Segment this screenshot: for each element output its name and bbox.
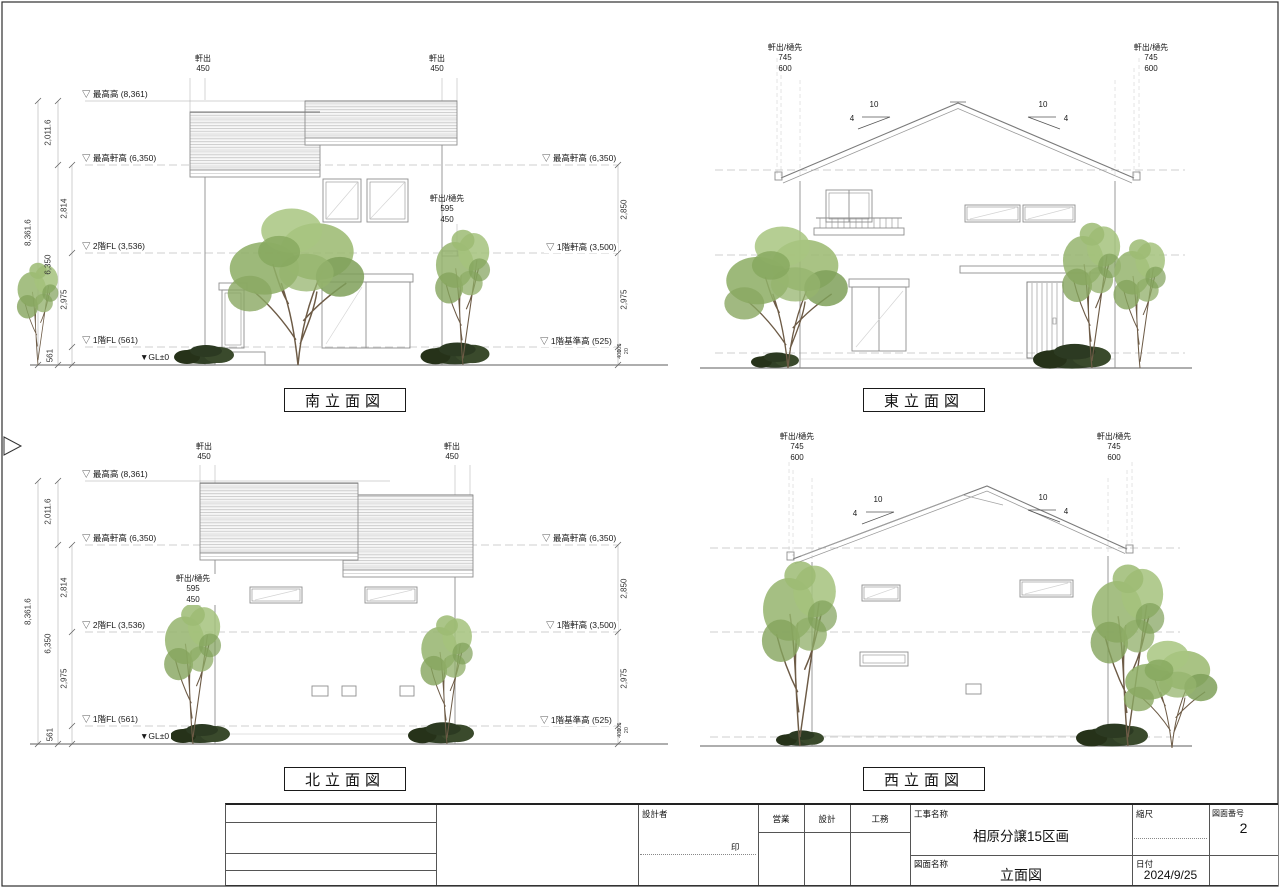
shrub xyxy=(421,342,490,364)
design-column-label: 設計 xyxy=(804,813,850,825)
tree xyxy=(164,604,221,744)
north-dim-right: 2,850 xyxy=(619,557,628,621)
shrub xyxy=(751,352,799,367)
north-vent-2 xyxy=(342,686,356,696)
south-dim: 2,975 xyxy=(59,268,68,332)
south-dim-total: 8,361.6 xyxy=(23,201,32,265)
signature-line xyxy=(640,854,756,855)
north-level-max-height: ▽ 最高高 (8,361) xyxy=(80,470,150,480)
designer-label: 設計者 xyxy=(642,808,668,820)
drawing-name-value: 立面図 xyxy=(910,865,1132,885)
north-level-right-max-eave: ▽ 最高軒高 (6,350) xyxy=(540,534,618,544)
north-vent-3 xyxy=(400,686,414,696)
north-dim: 2,975 xyxy=(59,647,68,711)
south-dim-right: 2,850 xyxy=(619,178,628,242)
east-entry-door xyxy=(1027,282,1063,358)
east-balcony-slab xyxy=(814,228,904,235)
west-view-title: 西立面図 xyxy=(863,767,985,791)
north-walls xyxy=(215,560,455,744)
north-eave-left-label: 軒出 450 xyxy=(186,442,222,463)
south-level-2fl: ▽ 2階FL (3,536) xyxy=(80,242,147,252)
north-view-title: 北立面図 xyxy=(284,767,406,791)
divider xyxy=(910,855,1278,856)
east-balcony-rail xyxy=(820,218,898,228)
east-slope-marks xyxy=(858,117,1060,129)
south-dim-small: 105 xyxy=(617,333,623,363)
shrub xyxy=(170,724,230,743)
north-level-2fl: ▽ 2階FL (3,536) xyxy=(80,621,147,631)
west-elevation-drawing xyxy=(700,462,1217,748)
west-1f-window xyxy=(860,652,908,666)
east-eave-right-label: 軒出/樋先 745 600 xyxy=(1128,43,1174,74)
south-level-max-height: ▽ 最高高 (8,361) xyxy=(80,90,150,100)
tree xyxy=(228,209,364,365)
project-name-value: 相原分譲15区画 xyxy=(910,825,1132,845)
divider xyxy=(638,805,639,885)
scale-line xyxy=(1134,838,1207,839)
shrub xyxy=(1076,724,1148,747)
north-roof-right xyxy=(343,495,473,570)
north-elevation-drawing xyxy=(30,465,668,747)
title-block: 設計者 印 営業 設計 工務 工事名称 相原分譲15区画 図面名称 立面図 縮尺… xyxy=(225,803,1278,886)
west-vent xyxy=(966,684,981,694)
south-dim: 561 xyxy=(45,324,54,388)
north-house xyxy=(200,483,473,744)
divider xyxy=(436,805,437,885)
east-eave-left-label: 軒出/樋先 745 600 xyxy=(762,43,808,74)
south-dim: 6,350 xyxy=(43,233,52,297)
west-eave-right-label: 軒出/樋先 745 600 xyxy=(1091,432,1137,463)
tree xyxy=(762,561,837,746)
revision-row-line xyxy=(226,822,436,823)
south-dim: 2,814 xyxy=(59,177,68,241)
south-level-right-1f-eave: ▽ 1階軒高 (3,500) xyxy=(544,243,618,253)
north-dim-small: 20 xyxy=(624,715,630,745)
north-dim: 6,350 xyxy=(43,612,52,676)
east-slope-run-right: 10 xyxy=(1031,100,1055,109)
tree xyxy=(1113,239,1165,368)
revision-row-line xyxy=(226,870,436,871)
north-gl-label: ▼GL±0 xyxy=(138,732,171,742)
south-level-max-eave: ▽ 最高軒高 (6,350) xyxy=(80,154,158,164)
north-dim: 2,814 xyxy=(59,556,68,620)
south-eave-left-label: 軒出 450 xyxy=(185,54,221,75)
north-dim-small: 105 xyxy=(617,712,623,742)
south-eave-mid-label: 軒出/樋先 595 450 xyxy=(424,194,470,225)
north-dim: 561 xyxy=(45,703,54,767)
west-house xyxy=(787,486,1133,746)
north-level-max-eave: ▽ 最高軒高 (6,350) xyxy=(80,534,158,544)
elevation-sheet: { "views": { "south": { "title": "南立面図",… xyxy=(0,0,1280,892)
works-column-label: 工務 xyxy=(850,813,910,825)
east-view-title: 東立面図 xyxy=(863,388,985,412)
south-roof-left xyxy=(190,112,320,170)
north-dim-right: 2,975 xyxy=(619,647,628,711)
east-slope-rise-right: 4 xyxy=(1060,114,1072,123)
south-view-title: 南立面図 xyxy=(284,388,406,412)
west-eave-left-label: 軒出/樋先 745 600 xyxy=(774,432,820,463)
shrub xyxy=(174,345,234,364)
west-slope-run-right: 10 xyxy=(1031,493,1055,502)
west-slope-run-left: 10 xyxy=(866,495,890,504)
east-slope-run-left: 10 xyxy=(862,100,886,109)
north-level-1fl: ▽ 1階FL (561) xyxy=(80,715,140,725)
east-roof xyxy=(781,103,1134,178)
east-elevation-drawing xyxy=(700,58,1192,369)
north-level-right-base: ▽ 1階基準高 (525) xyxy=(538,716,614,726)
scale-label: 縮尺 xyxy=(1136,808,1153,820)
south-level-right-max-eave: ▽ 最高軒高 (6,350) xyxy=(540,154,618,164)
sales-column-label: 営業 xyxy=(758,813,804,825)
west-walls xyxy=(812,556,1108,746)
project-name-label: 工事名称 xyxy=(914,808,948,820)
east-slope-rise-left: 4 xyxy=(846,114,858,123)
shrub xyxy=(1033,344,1111,369)
south-gl-label: ▼GL±0 xyxy=(138,353,171,363)
sheet-center-marker xyxy=(4,437,21,455)
drawing-number-value: 2 xyxy=(1209,820,1278,836)
south-dim-right: 2,975 xyxy=(619,268,628,332)
north-dim: 2,011.6 xyxy=(43,480,52,544)
south-dim: 2,011.6 xyxy=(43,101,52,165)
south-level-1fl: ▽ 1階FL (561) xyxy=(80,336,140,346)
tree xyxy=(724,226,848,368)
north-level-right-1f-eave: ▽ 1階軒高 (3,500) xyxy=(544,621,618,631)
divider xyxy=(1209,805,1210,885)
south-roof-right xyxy=(305,101,457,138)
revision-row-line xyxy=(226,853,436,854)
north-eave-mid-label: 軒出/樋先 595 450 xyxy=(170,574,216,605)
north-dim-total: 8,361.6 xyxy=(23,580,32,644)
west-slope-rise-left: 4 xyxy=(849,509,861,518)
north-roof-left xyxy=(200,483,358,553)
drawing-number-label: 図面番号 xyxy=(1212,808,1244,819)
south-eave-right-label: 軒出 450 xyxy=(419,54,455,75)
divider xyxy=(758,832,910,833)
north-eave-right-label: 軒出 450 xyxy=(434,442,470,463)
shrub xyxy=(408,722,474,743)
south-level-right-base: ▽ 1階基準高 (525) xyxy=(538,337,614,347)
seal-mark: 印 xyxy=(731,841,740,853)
south-elevation-drawing xyxy=(17,78,668,368)
south-dim-small: 20 xyxy=(624,336,630,366)
west-slope-rise-right: 4 xyxy=(1060,507,1072,516)
date-value: 2024/9/25 xyxy=(1132,868,1209,882)
north-vent-1 xyxy=(312,686,328,696)
